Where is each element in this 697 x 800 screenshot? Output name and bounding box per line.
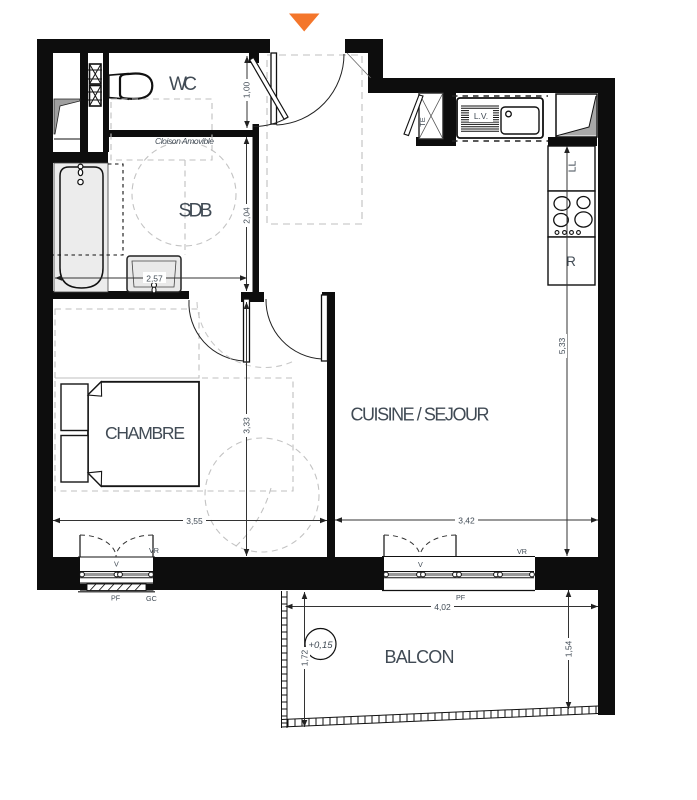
svg-text:Cloison Amovible: Cloison Amovible [155,136,214,146]
svg-text:3,42: 3,42 [458,516,475,526]
svg-text:WC: WC [169,74,197,95]
svg-text:5,33: 5,33 [557,337,567,354]
svg-text:PF: PF [456,593,466,602]
svg-text:CHAMBRE: CHAMBRE [105,423,185,443]
svg-text:3,55: 3,55 [186,516,203,526]
svg-text:VR: VR [517,547,527,556]
svg-text:1,54: 1,54 [564,640,574,657]
svg-text:+0,15: +0,15 [308,640,333,651]
svg-text:SDB: SDB [179,200,213,222]
svg-text:CUISINE / SEJOUR: CUISINE / SEJOUR [351,405,490,425]
svg-text:TE: TE [418,117,427,127]
svg-text:1,00: 1,00 [242,81,252,98]
svg-text:4,02: 4,02 [434,602,451,612]
svg-text:BALCON: BALCON [385,647,455,667]
svg-text:R: R [566,254,576,269]
svg-text:PF: PF [111,594,121,603]
svg-text:LL: LL [567,161,579,173]
svg-text:GC: GC [146,594,157,603]
svg-text:3,33: 3,33 [242,417,252,434]
svg-text:VR: VR [149,546,159,555]
svg-text:V: V [418,560,423,569]
svg-text:2,04: 2,04 [242,207,252,224]
svg-text:1,72: 1,72 [300,649,310,666]
svg-text:V: V [114,560,119,569]
svg-text:L.V.: L.V. [474,111,488,121]
svg-text:2,57: 2,57 [146,274,163,284]
